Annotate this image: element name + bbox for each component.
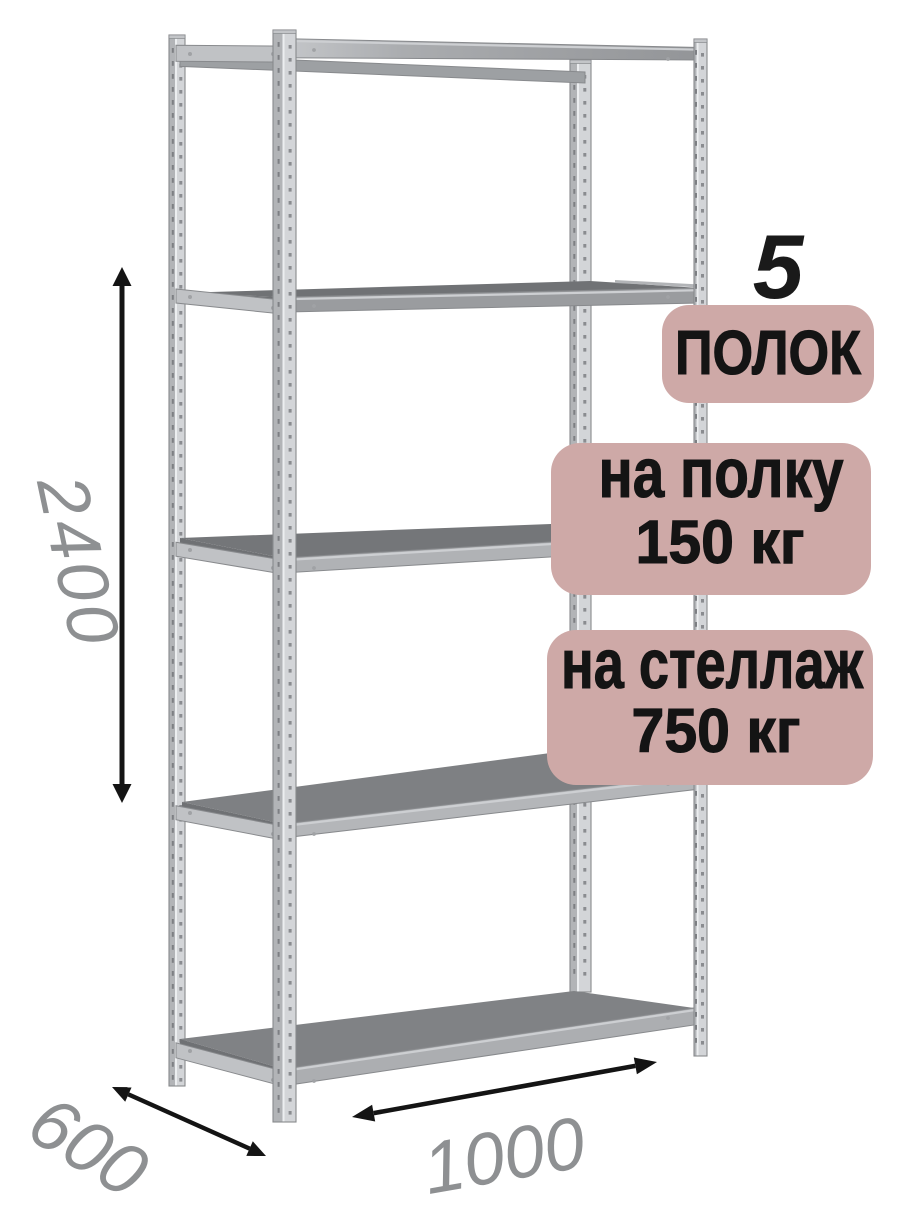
svg-text:750 кг: 750 кг — [632, 697, 801, 766]
svg-text:150 кг: 150 кг — [636, 508, 805, 576]
svg-text:ПОЛОК: ПОЛОК — [675, 319, 861, 388]
svg-text:на стеллаж: на стеллаж — [561, 625, 864, 703]
svg-text:на полку: на полку — [599, 434, 844, 512]
svg-text:5: 5 — [753, 217, 805, 318]
